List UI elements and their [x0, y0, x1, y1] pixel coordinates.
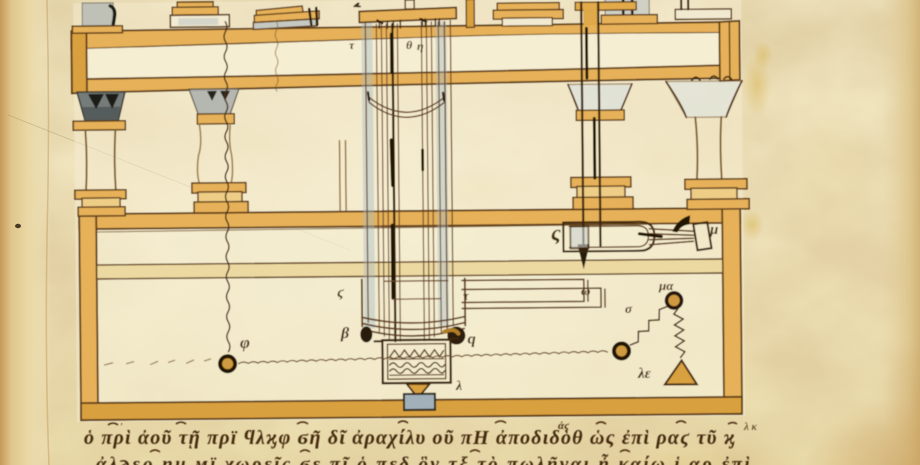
- svg-text:ϥ: ϥ: [467, 335, 476, 351]
- svg-text:ὁ πρὶ ἀοῦ τῇ πρϊ ϥλϗφ ϭῆ δῖ ἀρ: ὁ πρὶ ἀοῦ τῇ πρϊ ϥλϗφ ϭῆ δῖ ἀραχίλυ οῦ π…: [84, 427, 736, 449]
- svg-text:β: β: [340, 325, 350, 342]
- svg-text:φ: φ: [240, 333, 250, 352]
- svg-text:μ: μ: [709, 222, 718, 238]
- svg-text:ἀλϡεϱ ημ ϻϊ χωρεῖς ϭε πῖ ὁ πεδ: ἀλϡεϱ ημ ϻϊ χωρεῖς ϭε πῖ ὁ πεδ ὃν τξ τὸ …: [96, 454, 752, 465]
- svg-text:θ: θ: [406, 38, 413, 52]
- svg-text:λ: λ: [455, 379, 462, 394]
- svg-text:λ κ: λ κ: [743, 421, 758, 433]
- svg-text:μα: μα: [658, 278, 674, 293]
- svg-text:ς: ς: [551, 220, 561, 245]
- svg-text:σ: σ: [625, 301, 633, 316]
- svg-text:λε: λε: [637, 366, 652, 382]
- svg-text:ϛ: ϛ: [337, 285, 344, 301]
- svg-text:ω: ω: [581, 283, 590, 298]
- svg-text:η: η: [417, 39, 424, 53]
- svg-text:τ: τ: [349, 38, 355, 52]
